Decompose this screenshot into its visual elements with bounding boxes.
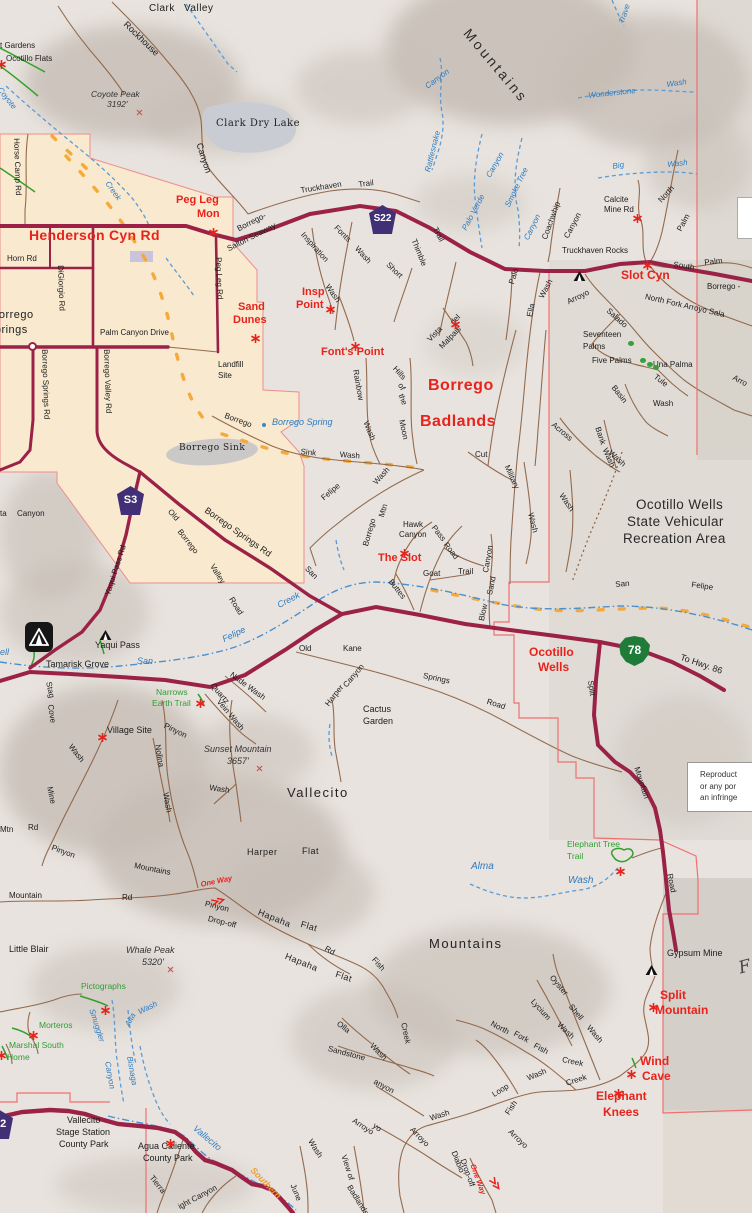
map-label: Mountain — [655, 1004, 708, 1016]
map-label: Borrego Spring — [272, 418, 333, 427]
map-label: Springs — [0, 325, 28, 336]
map-label: Landfill — [218, 361, 243, 369]
map-label: Clark Dry Lake — [216, 119, 300, 129]
map-label: San — [615, 580, 630, 589]
map-label: Trail — [458, 568, 473, 576]
map-label: Cactus — [363, 705, 391, 714]
map-label: Rd — [28, 824, 38, 832]
map-label: Little Blair — [9, 945, 49, 954]
map-label: ta — [0, 510, 7, 518]
roundabout-circle — [28, 342, 37, 351]
map-label: Five Palms — [592, 357, 632, 365]
map-label: Badlands — [420, 414, 496, 430]
notice-line: or any por — [700, 781, 752, 793]
map-label: Rd — [122, 894, 132, 902]
map-label: San — [137, 657, 153, 666]
palm-grove-dot — [640, 358, 646, 363]
poi-asterisk-icon — [0, 56, 6, 74]
map-label: Borrego Valley Rd — [102, 349, 112, 414]
poi-asterisk-icon — [633, 210, 642, 228]
map-label: DiGiorgio Rd — [56, 265, 66, 311]
map-label: Ocotillo Wells — [636, 498, 723, 512]
map-label: Mountains — [429, 937, 502, 950]
map-label: Palms — [583, 343, 605, 351]
map-label: Peg Leg — [176, 195, 219, 206]
map-label: Sink — [300, 448, 316, 458]
map-label: 3192' — [107, 100, 128, 109]
map-label: Garden — [363, 717, 393, 726]
map-label: Truckhaven Rocks — [562, 247, 628, 255]
map-label: Horse Camp Rd — [12, 138, 22, 196]
poi-asterisk-icon — [326, 301, 335, 319]
map-label: Mon — [197, 209, 220, 220]
map-label: Mine Rd — [604, 206, 634, 214]
poi-asterisk-icon — [0, 1047, 6, 1065]
map-label: Morteros — [39, 1021, 73, 1030]
map-label: Vallecito — [287, 786, 349, 799]
poi-asterisk-icon — [451, 316, 460, 334]
map-label: Home — [7, 1053, 30, 1062]
map-label: Borrego — [428, 378, 494, 394]
map-label: 5320' — [142, 958, 164, 967]
poi-asterisk-icon — [251, 330, 260, 348]
campsite-tent-icon — [99, 628, 112, 646]
poi-asterisk-icon — [196, 695, 205, 713]
map-label: Sand — [238, 302, 265, 313]
poi-asterisk-icon — [400, 545, 409, 563]
notice-line: Reproduct — [700, 769, 752, 781]
map-label: Coyote Peak — [91, 90, 140, 99]
map-label: Cut — [475, 451, 487, 459]
poi-asterisk-icon — [98, 729, 107, 747]
map-label: Split — [660, 989, 686, 1001]
campsite-tent-icon — [645, 963, 658, 981]
map-label: Borrego Sink — [179, 444, 245, 453]
map-label: Henderson Cyn Rd — [29, 228, 160, 242]
map-label: Hawk — [403, 521, 423, 529]
map-label: Wash — [339, 451, 360, 460]
map-label: Cave — [642, 1070, 671, 1082]
map-label: Wind — [640, 1055, 669, 1067]
map-label: Whale Peak — [126, 946, 175, 955]
map-label: Insp — [302, 287, 325, 298]
map-label: Mountain — [9, 892, 42, 900]
map-label: Palm Canyon Drive — [100, 329, 169, 337]
map-label: Clark — [149, 4, 175, 14]
map-label: Stage Station — [56, 1128, 110, 1137]
map-label: Kane — [343, 645, 362, 653]
map-label: Canyon — [17, 510, 45, 518]
peak-cross-icon — [167, 960, 174, 978]
peak-cross-icon — [256, 759, 263, 777]
map-label: Harper — [247, 848, 278, 857]
map-canvas[interactable]: Reproduct or any por an infringe ClarkVa… — [0, 0, 752, 1213]
map-label: Pictographs — [81, 982, 126, 991]
notice-line: an infringe — [700, 792, 752, 804]
map-label: Flat — [302, 847, 319, 856]
poi-asterisk-icon — [209, 224, 218, 242]
map-label: Wells — [538, 661, 569, 673]
map-label: Wash — [568, 876, 593, 886]
poi-asterisk-icon — [29, 1027, 38, 1045]
map-label: Sunset Mountain — [204, 745, 272, 754]
campsite-tent-icon — [573, 269, 586, 287]
map-label: Borrego — [0, 310, 34, 321]
poi-asterisk-icon — [101, 1002, 110, 1020]
map-label: Ocotillo Flats — [6, 55, 52, 63]
map-label: Knees — [603, 1106, 639, 1118]
poi-asterisk-icon — [351, 338, 360, 356]
map-label: 3657' — [227, 757, 249, 766]
peak-cross-icon — [136, 103, 143, 121]
map-label: Old — [299, 645, 311, 653]
map-label: Canyon — [399, 531, 427, 539]
map-label: Elephant Tree — [567, 840, 620, 849]
map-label: Recreation Area — [623, 532, 726, 546]
poi-asterisk-icon — [643, 257, 652, 275]
palm-grove-dot — [653, 365, 659, 370]
palm-grove-dot — [628, 341, 634, 346]
map-label: Mtn — [0, 826, 13, 834]
map-label: Narrows — [156, 688, 188, 697]
map-label: Wash — [653, 400, 673, 408]
spring-dot — [262, 423, 266, 427]
poi-asterisk-icon — [649, 999, 658, 1017]
map-label: Earth Trail — [152, 699, 191, 708]
map-label: Cove — [46, 704, 57, 724]
map-label: Calcite — [604, 196, 628, 204]
map-label: Tamarisk Grove — [46, 660, 109, 669]
map-label: County Park — [143, 1154, 193, 1163]
map-label: Peg Leg Rd — [214, 257, 223, 300]
poi-asterisk-icon — [616, 863, 625, 881]
copyright-notice: Reproduct or any por an infringe — [687, 762, 752, 812]
map-label: Split — [586, 680, 596, 697]
poi-asterisk-icon — [166, 1135, 175, 1153]
campground-icon — [25, 622, 53, 652]
map-label: t Gardens — [0, 42, 35, 50]
poi-asterisk-icon — [614, 1085, 623, 1103]
map-label: Dunes — [233, 315, 267, 326]
map-label: Borrego Springs Rd — [40, 349, 50, 420]
map-label: County Park — [59, 1140, 109, 1149]
map-label: ell — [0, 648, 9, 657]
map-label: Ocotillo — [529, 646, 574, 658]
legend-box-fragment — [737, 197, 752, 239]
poi-asterisk-icon — [627, 1066, 636, 1084]
map-label: Goat — [423, 570, 440, 578]
map-label: Horn Rd — [7, 255, 37, 263]
map-label: Gypsum Mine — [667, 949, 723, 958]
map-label: State Vehicular — [627, 515, 724, 529]
map-label: Village Site — [107, 726, 152, 735]
map-label: Vallecito — [67, 1116, 100, 1125]
map-label: Trail — [567, 852, 583, 861]
map-label: Alma — [471, 862, 494, 872]
map-label: Valley — [184, 4, 214, 14]
map-label: Point — [296, 300, 324, 311]
map-label: Borrego - — [707, 283, 740, 291]
map-label: Site — [218, 372, 232, 380]
map-label: Seventeen — [583, 331, 621, 339]
